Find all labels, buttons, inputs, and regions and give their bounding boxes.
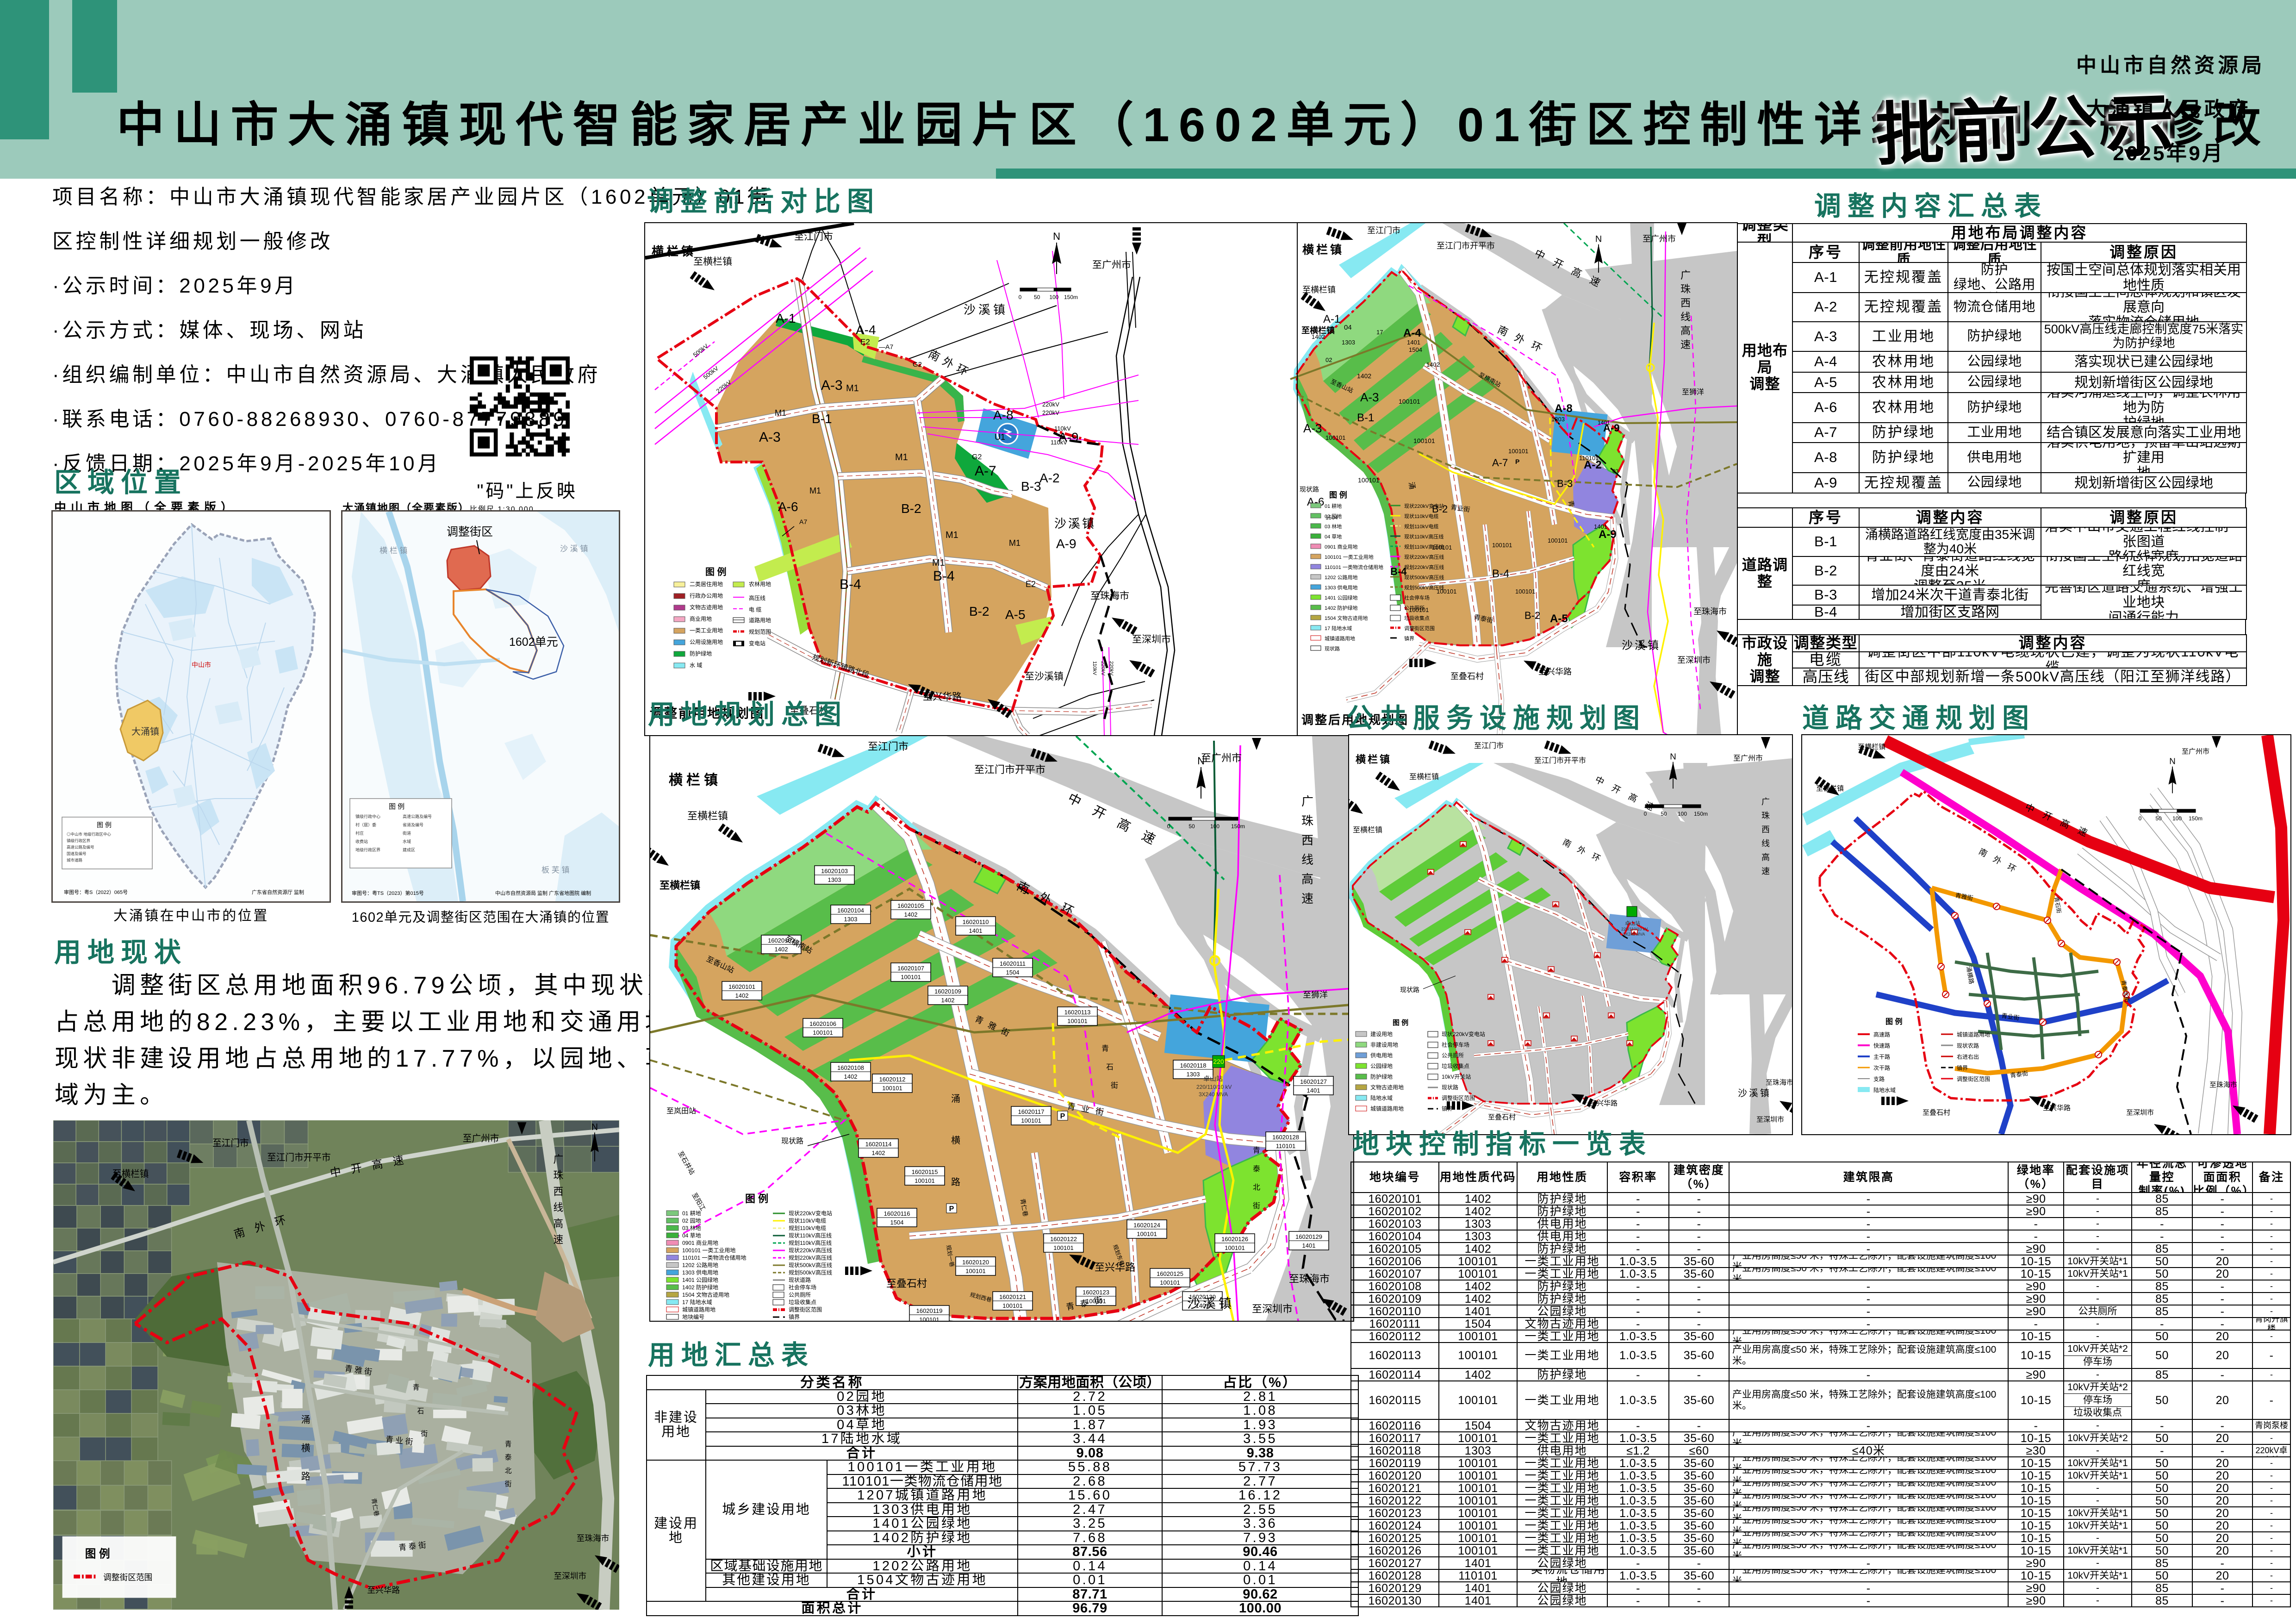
svg-text:A-9: A-9 <box>1056 537 1076 551</box>
svg-text:50: 50 <box>1034 294 1040 300</box>
svg-text:水 域: 水 域 <box>690 662 702 668</box>
svg-text:快速路: 快速路 <box>1873 1042 1890 1049</box>
svg-text:镇界: 镇界 <box>1442 1106 1453 1112</box>
svg-text:街: 街 <box>1253 1202 1260 1210</box>
svg-text:100101: 100101 <box>915 1177 934 1184</box>
svg-text:供电用地: 供电用地 <box>1370 1052 1393 1059</box>
svg-text:镇界: 镇界 <box>1404 635 1414 642</box>
svg-text:至广州市: 至广州市 <box>463 1133 499 1144</box>
svg-text:沙 溪 镇: 沙 溪 镇 <box>560 544 588 553</box>
svg-text:规划500kV高压线: 规划500kV高压线 <box>789 1269 832 1276</box>
svg-text:珠: 珠 <box>1301 814 1313 828</box>
svg-text:1401: 1401 <box>1598 419 1610 426</box>
svg-text:1202 公路用地: 1202 公路用地 <box>682 1262 718 1268</box>
svg-text:图 例: 图 例 <box>389 803 404 811</box>
svg-text:大涌镇: 大涌镇 <box>131 726 159 737</box>
svg-text:至珠海市: 至珠海市 <box>2209 1081 2237 1089</box>
svg-text:卓山站: 卓山站 <box>1625 920 1640 926</box>
svg-text:城镇道路用地: 城镇道路用地 <box>1957 1031 1990 1038</box>
svg-text:广: 广 <box>1761 797 1770 806</box>
svg-text:150m: 150m <box>1064 294 1078 300</box>
svg-text:省道及编号: 省道及编号 <box>403 822 423 827</box>
svg-text:16020113: 16020113 <box>1064 1009 1091 1016</box>
svg-text:100101: 100101 <box>1053 1244 1073 1251</box>
svg-text:0: 0 <box>2139 815 2142 822</box>
svg-text:1402 防护绿地: 1402 防护绿地 <box>682 1284 718 1291</box>
svg-text:1402: 1402 <box>872 1149 885 1156</box>
svg-text:A-5: A-5 <box>1005 607 1026 622</box>
svg-text:陆地水域: 陆地水域 <box>1873 1087 1896 1093</box>
svg-text:至珠海市: 至珠海市 <box>577 1534 610 1543</box>
svg-text:至珠海市: 至珠海市 <box>1090 591 1129 601</box>
svg-text:100: 100 <box>1678 811 1687 817</box>
svg-text:二类居住用地: 二类居住用地 <box>690 581 723 587</box>
svg-text:板 芙 镇: 板 芙 镇 <box>541 866 569 874</box>
svg-text:16020124: 16020124 <box>1133 1222 1160 1229</box>
svg-text:16020125: 16020125 <box>1157 1270 1183 1277</box>
svg-text:110101: 110101 <box>1276 1143 1295 1149</box>
svg-text:A-2: A-2 <box>1039 471 1060 485</box>
svg-text:1504 文物古迹用地: 1504 文物古迹用地 <box>682 1291 729 1298</box>
svg-text:1303 供电用地: 1303 供电用地 <box>1325 584 1358 591</box>
svg-text:泰: 泰 <box>1253 1165 1260 1173</box>
svg-text:规划220kV高压线: 规划220kV高压线 <box>1404 564 1444 570</box>
svg-text:16020111: 16020111 <box>1000 960 1026 967</box>
svg-text:M1: M1 <box>932 558 945 568</box>
svg-text:城镇道路用地: 城镇道路用地 <box>682 1306 716 1313</box>
svg-text:速: 速 <box>1301 892 1313 906</box>
svg-text:至江门市: 至江门市 <box>794 231 833 242</box>
svg-text:地级行政区界: 地级行政区界 <box>355 847 380 852</box>
svg-text:◎中山市 地级行政区中心: ◎中山市 地级行政区中心 <box>67 832 111 837</box>
svg-text:垃圾收集点: 垃圾收集点 <box>789 1299 816 1305</box>
svg-text:青: 青 <box>413 1384 420 1392</box>
svg-text:图 例: 图 例 <box>85 1548 110 1561</box>
svg-text:50: 50 <box>1188 823 1195 830</box>
svg-text:线: 线 <box>553 1202 563 1213</box>
svg-text:右进右出: 右进右出 <box>1957 1053 1979 1060</box>
svg-text:B-4: B-4 <box>840 577 861 592</box>
svg-text:16020101: 16020101 <box>728 983 755 990</box>
svg-text:图 例: 图 例 <box>745 1193 768 1205</box>
svg-text:现状路: 现状路 <box>1400 986 1419 993</box>
svg-text:现状220kV变电站: 现状220kV变电站 <box>1404 503 1444 509</box>
svg-text:100101: 100101 <box>1508 448 1528 455</box>
svg-text:珠: 珠 <box>1761 811 1770 820</box>
svg-text:防护绿地: 防护绿地 <box>1370 1073 1393 1080</box>
svg-text:16020112: 16020112 <box>879 1076 906 1083</box>
svg-text:M1: M1 <box>895 452 908 462</box>
svg-text:至江门市: 至江门市 <box>868 741 908 752</box>
svg-text:1303: 1303 <box>1342 339 1355 346</box>
svg-text:现状路: 现状路 <box>781 1137 803 1145</box>
svg-text:100101: 100101 <box>919 1316 939 1321</box>
svg-text:16020120: 16020120 <box>962 1259 989 1266</box>
svg-text:公共厕所: 公共厕所 <box>1404 605 1425 611</box>
svg-text:1303 供电用地: 1303 供电用地 <box>682 1269 718 1276</box>
svg-text:A-4: A-4 <box>1403 327 1421 339</box>
svg-text:城市道路: 城市道路 <box>67 858 83 862</box>
svg-text:A-3: A-3 <box>759 430 781 445</box>
svg-text:调整街区: 调整街区 <box>447 525 493 538</box>
svg-text:审图号：粤TS（2023）第015号: 审图号：粤TS（2023）第015号 <box>352 890 424 896</box>
svg-text:陆地水域: 陆地水域 <box>1370 1094 1393 1101</box>
svg-text:02: 02 <box>1325 356 1332 363</box>
svg-text:E2: E2 <box>860 337 870 346</box>
svg-text:农林用地: 农林用地 <box>749 581 771 587</box>
svg-text:至深圳市: 至深圳市 <box>1756 1116 1784 1124</box>
svg-text:规划110kV电缆: 规划110kV电缆 <box>789 1224 826 1231</box>
svg-text:1401 公园绿地: 1401 公园绿地 <box>682 1276 718 1283</box>
svg-text:B-2: B-2 <box>1524 610 1540 621</box>
svg-text:02 园地: 02 园地 <box>682 1218 701 1224</box>
svg-text:地块编号: 地块编号 <box>682 1313 704 1320</box>
svg-text:非建设用地: 非建设用地 <box>1370 1042 1398 1048</box>
svg-text:100101: 100101 <box>1515 588 1535 595</box>
svg-text:U1: U1 <box>995 432 1005 442</box>
svg-text:16020107: 16020107 <box>897 965 924 972</box>
svg-text:110kV: 110kV <box>1051 439 1067 446</box>
svg-text:1401: 1401 <box>1594 523 1607 530</box>
svg-text:16020106: 16020106 <box>809 1020 836 1027</box>
svg-text:220kV: 220kV <box>1100 661 1106 676</box>
svg-text:至江门市开平市: 至江门市开平市 <box>1437 241 1495 250</box>
svg-text:高速路: 高速路 <box>1873 1031 1890 1038</box>
svg-text:01 耕地: 01 耕地 <box>682 1210 701 1217</box>
svg-text:B-2: B-2 <box>969 604 989 618</box>
svg-text:16020104: 16020104 <box>837 907 864 914</box>
svg-text:A-4: A-4 <box>856 323 876 337</box>
svg-text:0: 0 <box>1167 823 1170 830</box>
svg-text:100101: 100101 <box>1413 437 1435 444</box>
svg-text:文物古迹用地: 文物古迹用地 <box>690 604 723 611</box>
svg-text:G2: G2 <box>972 453 982 461</box>
svg-text:速: 速 <box>553 1234 563 1245</box>
svg-text:珠: 珠 <box>1680 283 1691 295</box>
svg-text:至深圳市: 至深圳市 <box>554 1571 586 1580</box>
svg-text:1401: 1401 <box>1407 339 1420 346</box>
svg-text:E2: E2 <box>1026 580 1036 589</box>
svg-text:220/110/10 kV: 220/110/10 kV <box>1621 927 1648 931</box>
svg-text:M1: M1 <box>775 408 786 418</box>
svg-text:16020108: 16020108 <box>837 1064 864 1071</box>
svg-text:北: 北 <box>505 1467 512 1475</box>
svg-text:支路: 支路 <box>1873 1075 1885 1082</box>
svg-text:16020129: 16020129 <box>1295 1233 1322 1240</box>
svg-text:至江门市: 至江门市 <box>1367 226 1400 235</box>
svg-text:B-4: B-4 <box>1492 568 1509 580</box>
svg-text:现状道路: 现状道路 <box>789 1276 811 1283</box>
svg-text:至江门市: 至江门市 <box>1474 742 1504 750</box>
svg-text:1504: 1504 <box>890 1219 904 1226</box>
svg-text:1402 防护绿地: 1402 防护绿地 <box>1325 605 1358 611</box>
svg-text:镇级行政区界: 镇级行政区界 <box>67 838 91 843</box>
svg-text:青: 青 <box>1567 500 1575 508</box>
svg-text:社会停车场: 社会停车场 <box>789 1284 816 1291</box>
svg-text:100101 一类工业用地: 100101 一类工业用地 <box>1325 554 1374 560</box>
svg-text:04: 04 <box>1344 324 1352 331</box>
svg-text:220kV: 220kV <box>1108 661 1114 676</box>
svg-text:垃圾收集点: 垃圾收集点 <box>1404 615 1430 621</box>
svg-text:至叠石村: 至叠石村 <box>886 1278 927 1289</box>
svg-text:16020121: 16020121 <box>999 1293 1026 1300</box>
svg-text:至广州市: 至广州市 <box>1201 752 1242 764</box>
svg-text:西: 西 <box>553 1186 563 1197</box>
svg-text:04 草地: 04 草地 <box>682 1232 701 1239</box>
svg-text:17: 17 <box>1376 329 1383 336</box>
svg-text:速: 速 <box>1680 339 1691 350</box>
svg-text:1401: 1401 <box>969 927 983 934</box>
svg-text:100101: 100101 <box>1021 1117 1041 1124</box>
svg-text:现状路: 现状路 <box>1325 645 1340 652</box>
svg-text:100: 100 <box>2172 815 2182 822</box>
svg-text:0901 商业用地: 0901 商业用地 <box>1325 543 1358 550</box>
svg-text:图 例: 图 例 <box>1885 1017 1902 1026</box>
svg-text:北: 北 <box>1253 1183 1260 1192</box>
svg-text:公用设施用地: 公用设施用地 <box>690 639 723 645</box>
svg-text:规划500kV高压线: 规划500kV高压线 <box>1404 584 1444 591</box>
svg-text:B-1: B-1 <box>812 412 832 426</box>
svg-text:西: 西 <box>1761 825 1770 834</box>
svg-text:现状路: 现状路 <box>1300 486 1319 493</box>
svg-text:至江门市开平市: 至江门市开平市 <box>1534 756 1586 765</box>
svg-text:现状农路: 现状农路 <box>1957 1042 1979 1049</box>
svg-text:至江门市开平市: 至江门市开平市 <box>974 764 1045 775</box>
svg-text:至珠海市: 至珠海市 <box>1289 1273 1330 1285</box>
svg-text:广: 广 <box>1301 794 1313 808</box>
svg-text:现状220kV变电站: 现状220kV变电站 <box>1442 1031 1485 1037</box>
svg-text:50: 50 <box>1661 811 1667 817</box>
svg-text:1401: 1401 <box>1302 1242 1316 1249</box>
svg-text:A-9: A-9 <box>1599 528 1617 541</box>
svg-text:至珠海市: 至珠海市 <box>1693 607 1727 616</box>
svg-text:泰: 泰 <box>505 1454 512 1462</box>
svg-text:横栏镇: 横栏镇 <box>1302 244 1344 256</box>
svg-text:垃圾收集点: 垃圾收集点 <box>1442 1062 1469 1069</box>
svg-text:道路用地: 道路用地 <box>749 617 771 624</box>
svg-text:至狮洋: 至狮洋 <box>1303 990 1328 999</box>
svg-text:卓山站: 卓山站 <box>1203 1075 1223 1082</box>
svg-text:建设用地: 建设用地 <box>1370 1031 1393 1037</box>
svg-text:文物古迹用地: 文物古迹用地 <box>1370 1084 1404 1091</box>
svg-text:16020114: 16020114 <box>865 1141 892 1148</box>
svg-text:主干路: 主干路 <box>1873 1053 1890 1060</box>
svg-text:沙溪镇: 沙溪镇 <box>1187 1296 1234 1311</box>
svg-text:涌: 涌 <box>301 1414 311 1425</box>
svg-text:A-5: A-5 <box>1550 612 1568 625</box>
svg-text:100101: 100101 <box>1548 537 1568 544</box>
svg-text:1402: 1402 <box>735 992 749 999</box>
svg-text:路: 路 <box>301 1471 311 1482</box>
svg-text:现状110kV电缆: 现状110kV电缆 <box>789 1218 826 1224</box>
svg-text:至狮洋: 至狮洋 <box>1682 388 1704 396</box>
svg-text:图 例: 图 例 <box>1393 1018 1408 1027</box>
svg-text:公共厕所: 公共厕所 <box>789 1292 811 1298</box>
svg-text:10kV开关站: 10kV开关站 <box>1442 1074 1471 1080</box>
svg-text:150m: 150m <box>1231 823 1245 830</box>
svg-text:涌: 涌 <box>951 1093 960 1104</box>
svg-text:公园绿地: 公园绿地 <box>1370 1062 1393 1069</box>
svg-text:100101: 100101 <box>1399 398 1420 405</box>
svg-text:A-7: A-7 <box>1492 457 1508 468</box>
svg-text:100101: 100101 <box>1492 542 1512 549</box>
svg-text:防护绿地: 防护绿地 <box>690 650 712 657</box>
svg-text:N: N <box>591 1122 598 1132</box>
svg-text:100101: 100101 <box>1002 1302 1022 1309</box>
svg-text:1202 公路用地: 1202 公路用地 <box>1325 575 1358 581</box>
svg-text:至兴华路: 至兴华路 <box>367 1586 400 1595</box>
svg-text:1402: 1402 <box>775 946 788 953</box>
svg-text:16020127: 16020127 <box>1300 1078 1327 1085</box>
svg-text:100101: 100101 <box>901 974 921 981</box>
svg-text:高: 高 <box>1680 325 1691 337</box>
svg-text:图 例: 图 例 <box>1329 490 1347 500</box>
svg-text:17 陆地水域: 17 陆地水域 <box>682 1299 712 1305</box>
svg-text:一类工业用地: 一类工业用地 <box>690 627 723 634</box>
svg-text:线: 线 <box>1301 853 1313 867</box>
svg-text:线: 线 <box>1680 311 1691 323</box>
svg-text:1303: 1303 <box>1187 1071 1200 1078</box>
svg-text:3X240 MVA: 3X240 MVA <box>1199 1091 1228 1098</box>
svg-text:横 栏 镇: 横 栏 镇 <box>380 546 407 555</box>
svg-text:1602单元: 1602单元 <box>509 636 558 649</box>
svg-text:P: P <box>949 1205 954 1213</box>
svg-text:B-4: B-4 <box>933 568 955 584</box>
svg-text:沙溪镇: 沙溪镇 <box>1622 639 1661 652</box>
svg-text:A-3: A-3 <box>1303 421 1322 435</box>
svg-text:至广州市: 至广州市 <box>2182 748 2209 756</box>
svg-text:A-8: A-8 <box>993 408 1014 422</box>
svg-text:16020126: 16020126 <box>1221 1236 1248 1243</box>
svg-text:高: 高 <box>1301 872 1313 886</box>
svg-text:至叠石村: 至叠石村 <box>1923 1109 1950 1117</box>
svg-text:1402: 1402 <box>844 1073 858 1080</box>
svg-text:0901 商业用地: 0901 商业用地 <box>682 1239 718 1246</box>
svg-text:青: 青 <box>1253 1146 1260 1155</box>
svg-text:沙溪镇: 沙溪镇 <box>1738 1088 1771 1099</box>
svg-text:B-2: B-2 <box>901 501 921 516</box>
svg-text:至江门市开平市: 至江门市开平市 <box>267 1152 331 1162</box>
svg-text:西: 西 <box>1301 833 1313 847</box>
svg-text:广: 广 <box>553 1154 563 1165</box>
svg-text:220: 220 <box>1213 1058 1224 1065</box>
svg-text:现状500kV高压线: 现状500kV高压线 <box>1404 574 1444 581</box>
svg-text:100101: 100101 <box>1160 1279 1180 1286</box>
svg-text:现状500kV高压线: 现状500kV高压线 <box>789 1262 832 1268</box>
svg-text:100101: 100101 <box>965 1268 985 1274</box>
svg-text:N: N <box>1053 231 1060 242</box>
svg-text:石: 石 <box>417 1407 424 1415</box>
svg-text:电 缆: 电 缆 <box>749 606 761 613</box>
svg-text:100101: 100101 <box>1225 1244 1244 1251</box>
svg-text:商业用地: 商业用地 <box>690 615 712 622</box>
svg-text:1504 文物古迹用地: 1504 文物古迹用地 <box>1325 615 1368 621</box>
svg-text:城镇道路用地: 城镇道路用地 <box>1370 1105 1404 1112</box>
svg-text:高压线: 高压线 <box>749 594 765 601</box>
svg-text:至横栏镇: 至横栏镇 <box>687 810 728 822</box>
svg-text:青: 青 <box>505 1440 512 1448</box>
svg-text:图 例: 图 例 <box>97 821 112 829</box>
svg-text:N: N <box>1595 234 1602 244</box>
svg-text:100101: 100101 <box>1137 1230 1157 1237</box>
svg-text:1401 公园绿地: 1401 公园绿地 <box>1325 594 1358 601</box>
svg-text:1402: 1402 <box>1357 372 1371 380</box>
svg-text:04 草地: 04 草地 <box>1325 534 1342 540</box>
svg-text:至深圳市: 至深圳市 <box>1132 634 1171 645</box>
svg-text:现状220kV高压线: 现状220kV高压线 <box>1404 554 1444 560</box>
svg-text:现状220kV高压线: 现状220kV高压线 <box>789 1247 832 1254</box>
svg-text:16020128: 16020128 <box>1272 1134 1299 1141</box>
svg-text:N: N <box>1197 755 1205 767</box>
svg-text:B-3: B-3 <box>1557 478 1573 489</box>
svg-text:100101: 100101 <box>813 1029 833 1036</box>
svg-text:涌: 涌 <box>1407 481 1417 490</box>
svg-text:速: 速 <box>1761 867 1770 876</box>
svg-text:至广州市: 至广州市 <box>1092 260 1131 270</box>
svg-text:至横栏镇: 至横栏镇 <box>660 880 700 891</box>
svg-text:镇级行政中心: 镇级行政中心 <box>355 814 380 819</box>
svg-text:16020105: 16020105 <box>897 902 924 909</box>
svg-text:100101: 100101 <box>1067 1018 1087 1024</box>
svg-text:高: 高 <box>553 1218 563 1229</box>
svg-text:规划范围: 规划范围 <box>749 628 771 635</box>
svg-text:水域: 水域 <box>403 839 411 844</box>
svg-text:青: 青 <box>1101 1044 1109 1053</box>
svg-text:次干路: 次干路 <box>1873 1064 1890 1071</box>
svg-text:110kV: 110kV <box>1054 425 1071 432</box>
svg-text:城镇道路用地: 城镇道路用地 <box>1325 635 1355 642</box>
svg-text:100101: 100101 <box>882 1085 902 1092</box>
svg-text:调整街区范围: 调整街区范围 <box>1404 625 1435 631</box>
svg-text:镇界: 镇界 <box>789 1314 800 1320</box>
svg-text:B-1: B-1 <box>1357 412 1374 424</box>
svg-text:1402: 1402 <box>1426 361 1440 368</box>
svg-text:M1: M1 <box>1009 538 1020 548</box>
svg-text:A-7: A-7 <box>975 463 996 479</box>
svg-text:N: N <box>2169 756 2176 766</box>
svg-text:N: N <box>1670 752 1676 762</box>
svg-text:110101 一类物流仓储用地: 110101 一类物流仓储用地 <box>1325 564 1383 570</box>
svg-text:1402: 1402 <box>1312 333 1325 340</box>
svg-text:调整街区范围: 调整街区范围 <box>1957 1075 1990 1082</box>
svg-text:17 陆地水域: 17 陆地水域 <box>1325 625 1352 631</box>
svg-text:社会停车场: 社会停车场 <box>1442 1041 1469 1048</box>
svg-text:至江门市: 至江门市 <box>212 1138 249 1149</box>
svg-text:16020115: 16020115 <box>912 1168 938 1175</box>
svg-text:至深圳市: 至深圳市 <box>1677 656 1711 665</box>
svg-text:100: 100 <box>1210 823 1220 830</box>
svg-text:03 林地: 03 林地 <box>682 1225 701 1231</box>
svg-text:至广州市: 至广州市 <box>1643 234 1676 244</box>
svg-text:镇界: 镇界 <box>1957 1065 1968 1071</box>
svg-text:150m: 150m <box>1694 811 1708 817</box>
svg-text:50: 50 <box>2155 815 2162 822</box>
svg-text:现状110kV高压线: 现状110kV高压线 <box>789 1232 832 1239</box>
svg-text:100101 一类工业用地: 100101 一类工业用地 <box>682 1247 735 1254</box>
svg-text:图 例: 图 例 <box>705 566 727 577</box>
svg-text:横: 横 <box>301 1443 311 1454</box>
svg-text:至兴华路: 至兴华路 <box>1095 1262 1135 1273</box>
svg-text:1402: 1402 <box>941 997 955 1004</box>
svg-text:16020123: 16020123 <box>1083 1289 1109 1296</box>
svg-text:A-1: A-1 <box>1323 313 1340 325</box>
svg-text:社会停车场: 社会停车场 <box>1404 594 1430 601</box>
svg-text:03 林地: 03 林地 <box>1325 523 1342 530</box>
svg-text:0: 0 <box>1019 294 1022 300</box>
svg-text:至叠石村: 至叠石村 <box>1488 1113 1516 1121</box>
svg-text:至深圳市: 至深圳市 <box>1252 1303 1293 1315</box>
svg-text:220/110/10 kV: 220/110/10 kV <box>1196 1084 1232 1090</box>
